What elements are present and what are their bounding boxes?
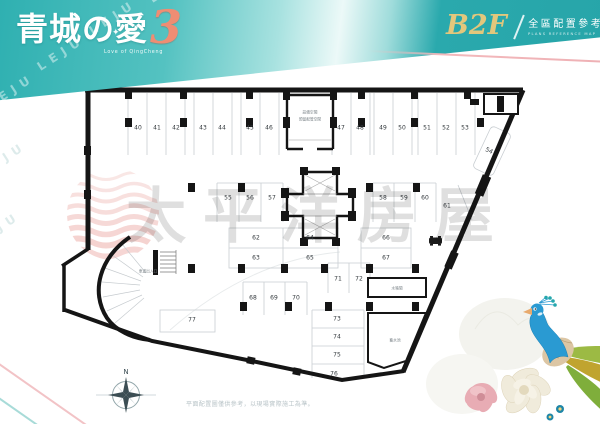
aisle-guide-arc bbox=[170, 252, 340, 330]
slash-divider bbox=[513, 15, 524, 40]
plan-title-zh: 全區配置參考圖 bbox=[528, 15, 600, 30]
car-icon bbox=[429, 236, 442, 246]
elevator-top-right bbox=[470, 94, 518, 114]
floor-plan-page: 4041424344454647484950515253545556575859… bbox=[0, 0, 600, 424]
floor-label: B2F bbox=[446, 12, 507, 39]
service-rooms bbox=[368, 278, 426, 368]
plan-titles: 全區配置參考圖 PLANS REFERENCE MAP bbox=[528, 12, 600, 39]
equipment-room bbox=[287, 95, 333, 149]
logo-subtitle: Love of QingCheng bbox=[104, 49, 163, 55]
compass-rose: N bbox=[96, 366, 156, 422]
peacock-flower-decoration bbox=[420, 289, 600, 424]
disclaimer-text: 平面配置圖僅供參考，以現場實際施工為準。 bbox=[186, 399, 314, 408]
logo-number: 3 bbox=[150, 8, 182, 47]
plan-title-en: PLANS REFERENCE MAP bbox=[528, 32, 596, 36]
ramp-stairs bbox=[153, 250, 176, 275]
floor-header: B2F 全區配置參考圖 PLANS REFERENCE MAP bbox=[446, 12, 600, 40]
sparkle-icon: ✦ bbox=[112, 28, 120, 38]
compass-north-label: N bbox=[123, 368, 128, 376]
